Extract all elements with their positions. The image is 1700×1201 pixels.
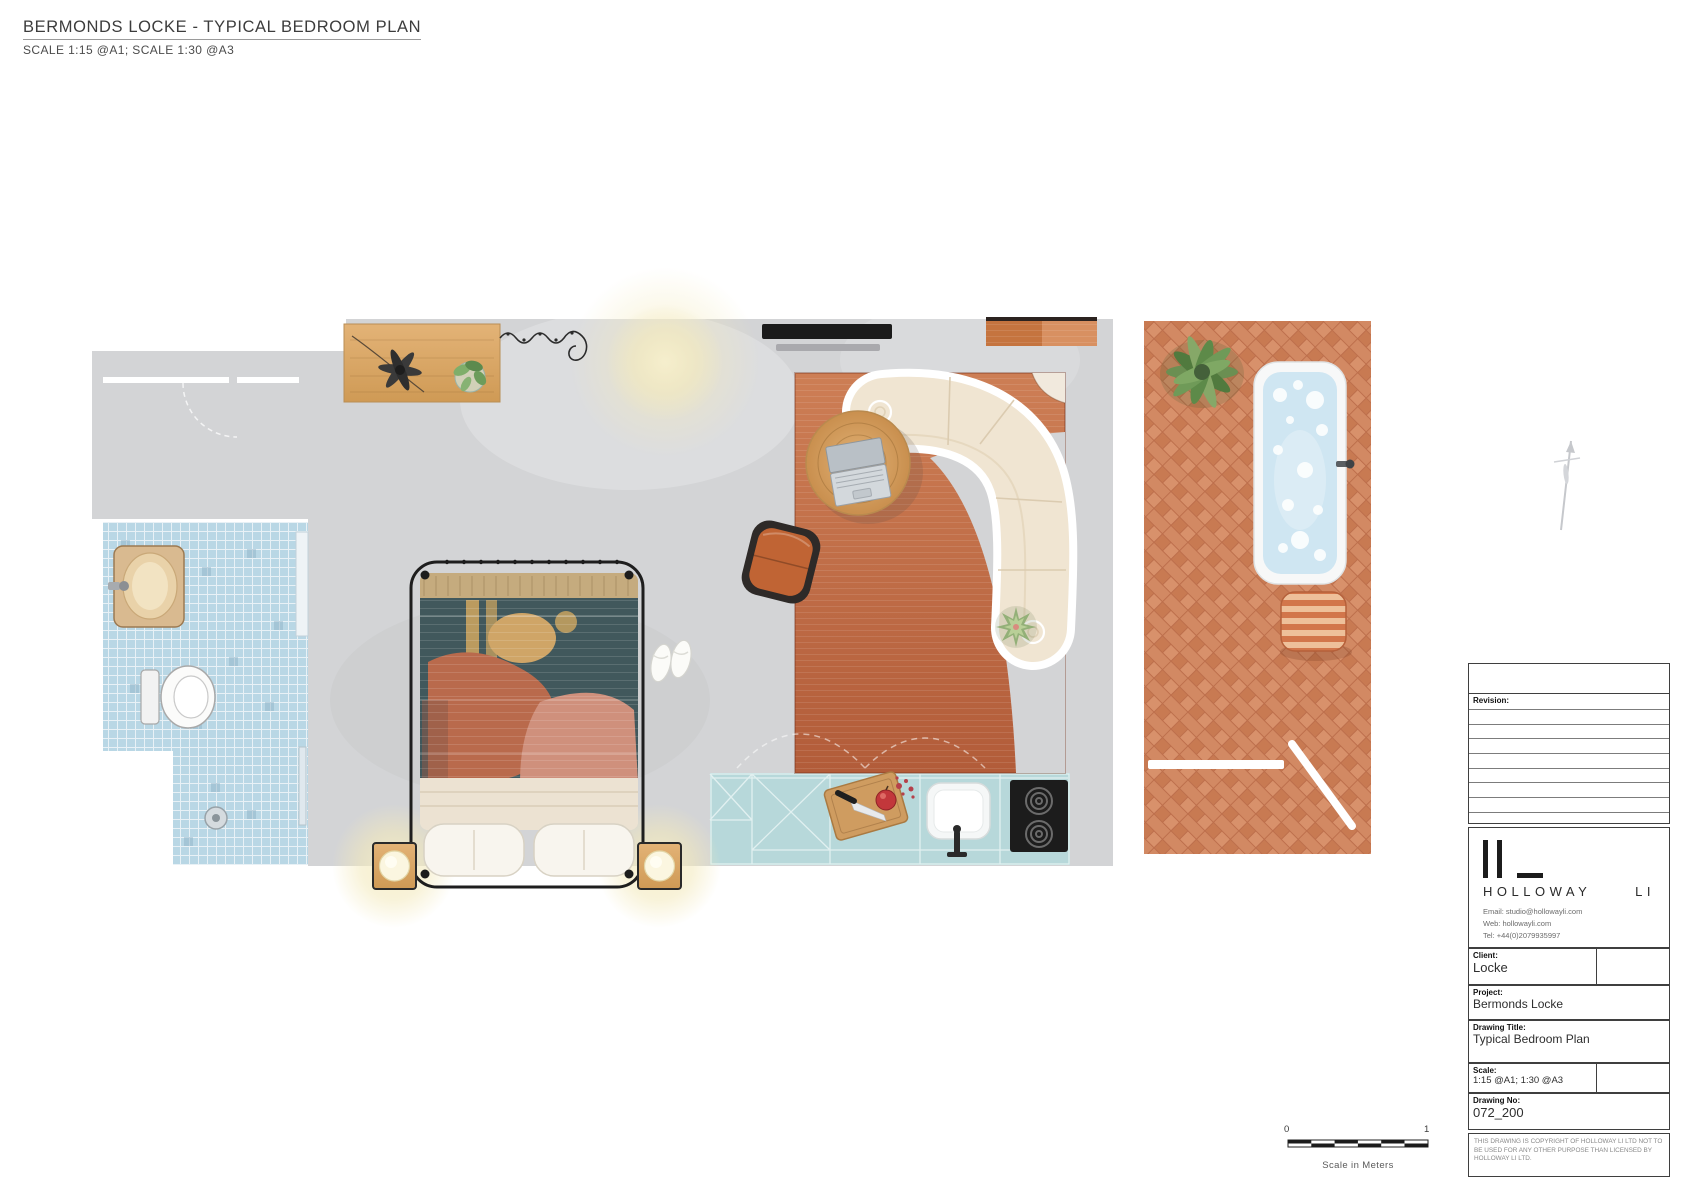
page-title: BERMONDS LOCKE - TYPICAL BEDROOM PLAN	[23, 18, 421, 40]
striped-stool-icon	[1280, 592, 1352, 661]
project-label: Project:	[1469, 986, 1669, 997]
laptop-icon	[826, 438, 892, 507]
scale-label: Scale:	[1469, 1064, 1669, 1075]
scale-bar-one: 1	[1424, 1124, 1429, 1135]
drawing-no-label: Drawing No:	[1469, 1094, 1669, 1105]
scale-bar-zero: 0	[1284, 1124, 1289, 1135]
client-value: Locke	[1469, 960, 1669, 975]
contact-email: Email: studio@hollowayli.com	[1483, 906, 1669, 918]
revision-row	[1469, 783, 1669, 798]
doormat-icon	[986, 317, 1097, 346]
contact-web: Web: hollowayli.com	[1483, 918, 1669, 930]
floor-plan	[0, 0, 1700, 1201]
copyright-box: THIS DRAWING IS COPYRIGHT OF HOLLOWAY LI…	[1468, 1133, 1670, 1177]
revision-header-cell	[1469, 664, 1669, 694]
succulent-icon	[995, 606, 1037, 648]
bathtub-icon	[1254, 362, 1355, 584]
drawing-sheet: BERMONDS LOCKE - TYPICAL BEDROOM PLAN SC…	[0, 0, 1700, 1201]
holloway-li-logo-icon	[1483, 840, 1669, 882]
project-box: Project: Bermonds Locke	[1468, 985, 1670, 1020]
client-label: Client:	[1469, 949, 1669, 960]
hob-icon	[1010, 780, 1068, 852]
scale-value: 1:15 @A1; 1:30 @A3	[1469, 1075, 1669, 1086]
revision-label: Revision:	[1469, 694, 1669, 710]
tv-icon	[762, 324, 892, 351]
logo-suffix: LI	[1635, 884, 1655, 899]
copyright-note: THIS DRAWING IS COPYRIGHT OF HOLLOWAY LI…	[1469, 1134, 1669, 1164]
revision-row	[1469, 739, 1669, 754]
revision-table: Revision:	[1468, 663, 1670, 824]
scale-bar-caption: Scale in Meters	[1288, 1160, 1428, 1171]
scale-box: Scale: 1:15 @A1; 1:30 @A3	[1468, 1063, 1670, 1093]
logo-box: HOLLOWAY LI Email: studio@hollowayli.com…	[1468, 827, 1670, 948]
north-needle-icon	[1554, 441, 1580, 530]
desk	[344, 324, 500, 402]
revision-row	[1469, 754, 1669, 769]
drawing-no-value: 072_200	[1469, 1105, 1669, 1120]
entry-corridor-floor	[92, 351, 346, 519]
revision-row	[1469, 813, 1669, 827]
vanity-sink-icon	[108, 546, 184, 627]
drawing-title-box: Drawing Title: Typical Bedroom Plan	[1468, 1020, 1670, 1063]
client-box: Client: Locke	[1468, 948, 1670, 985]
title-block: Revision: HOLLOWAY LI Email: studio@holl…	[1468, 663, 1672, 1177]
drawing-no-box: Drawing No: 072_200	[1468, 1093, 1670, 1130]
scale-bar-icon	[1288, 1140, 1428, 1147]
shower-drain-icon	[205, 807, 227, 829]
revision-row	[1469, 725, 1669, 740]
drawing-title-label: Drawing Title:	[1469, 1021, 1669, 1032]
revision-row	[1469, 710, 1669, 725]
project-value: Bermonds Locke	[1469, 997, 1669, 1011]
sheet-header: BERMONDS LOCKE - TYPICAL BEDROOM PLAN SC…	[23, 18, 421, 57]
revision-row	[1469, 769, 1669, 784]
revision-row	[1469, 798, 1669, 813]
contact-tel: Tel: +44(0)2079935997	[1483, 930, 1669, 942]
logo-wordmark: HOLLOWAY	[1483, 884, 1591, 899]
page-subtitle: SCALE 1:15 @A1; SCALE 1:30 @A3	[23, 43, 421, 57]
toilet-icon	[141, 666, 215, 728]
ceiling-light-icon	[570, 267, 760, 457]
drawing-title-value: Typical Bedroom Plan	[1469, 1032, 1669, 1046]
